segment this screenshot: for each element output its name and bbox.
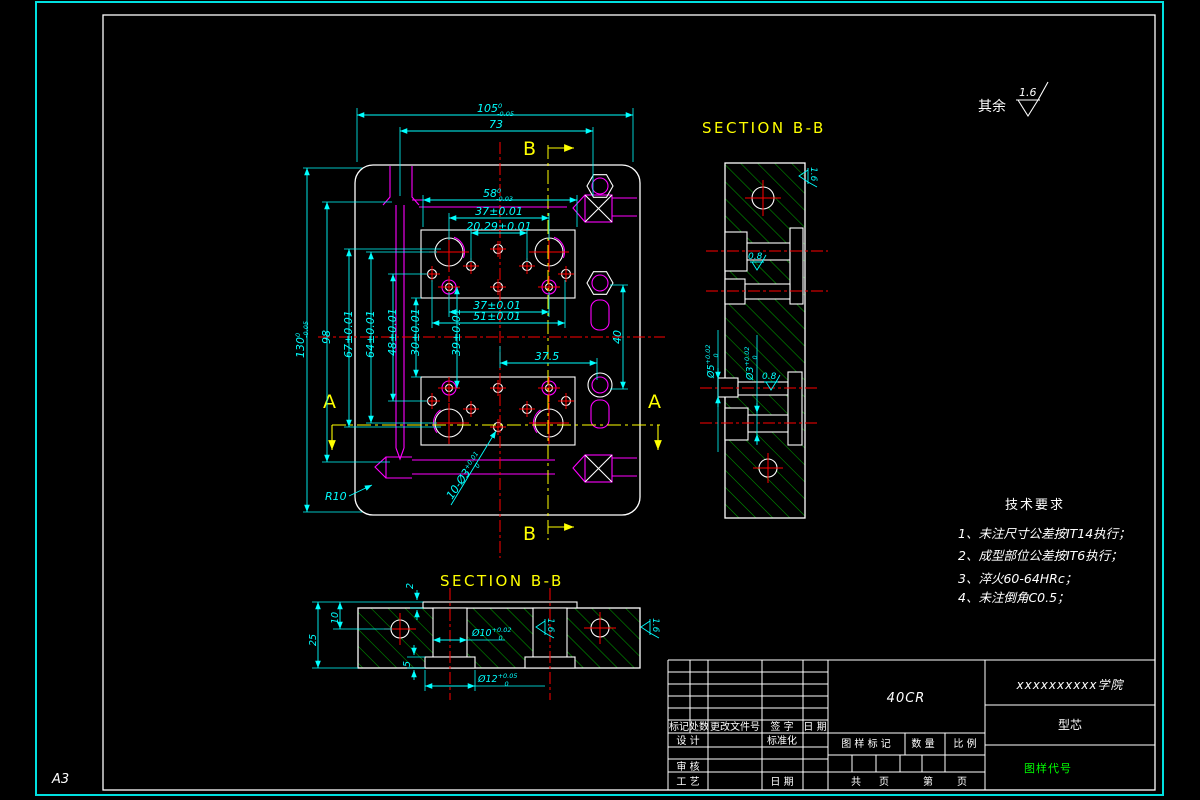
dim-20.29: 20.29±0.01 xyxy=(466,220,531,233)
total-label: 共 xyxy=(851,776,861,788)
tech-req-item-3: 3、淬火60-64HRc； xyxy=(958,571,1077,586)
dim-10xd3: 10-Ø3+0.010 xyxy=(444,450,487,503)
dim-25: 25 xyxy=(308,634,319,646)
row-check-label: 审 核 xyxy=(676,760,699,773)
dim-10: 10 xyxy=(330,612,341,624)
r10-leader xyxy=(349,485,372,496)
title-block: 标记 处数 更改文件号 签 字 日 期 设 计 标准化 审 核 工 艺 日 期 … xyxy=(668,660,1155,790)
finish-0.8-b: 0.8 xyxy=(762,372,777,382)
dim-r10: R10 xyxy=(325,490,347,503)
sheet-format-label: A3 xyxy=(51,772,69,787)
cad-canvas: A3 其余 1.6 xyxy=(0,0,1200,800)
dim-37-top: 37±0.01 xyxy=(475,205,523,218)
dim-30: 30±0.01 xyxy=(409,308,422,356)
section-label-right: SECTION B-B xyxy=(702,119,826,137)
plan-dimension-lines xyxy=(303,108,633,512)
rev-header-count: 处数 xyxy=(689,720,709,733)
quantity-label: 数 量 xyxy=(911,737,934,750)
drawing-border: A3 xyxy=(36,2,1163,795)
row-standard-label: 标准化 xyxy=(767,734,797,747)
section-view-bottom: SECTION B-B 25 10 2 5 Ø10+0.020 Ø12+0.05… xyxy=(308,572,660,700)
row-date-label: 日 期 xyxy=(770,776,793,788)
tech-requirements: 技术要求 1、未注尺寸公差按IT14执行； 2、成型部位公差按IT6执行； 3、… xyxy=(958,498,1131,605)
rev-header-docno: 更改文件号 xyxy=(710,720,760,733)
roughness-icon: 1.6 xyxy=(641,618,660,638)
rev-header-mark: 标记 xyxy=(669,721,689,733)
drawing-mark-label: 图 样 标 记 xyxy=(841,737,891,750)
rev-header-sign: 签 字 xyxy=(770,720,793,733)
general-finish-note: 其余 1.6 xyxy=(978,82,1048,116)
dim-2: 2 xyxy=(405,583,416,589)
tech-req-item-2: 2、成型部位公差按IT6执行； xyxy=(958,548,1123,563)
dim-48: 48±0.01 xyxy=(386,308,399,356)
dim-39: 39±0.01 xyxy=(450,308,463,356)
finish-0.8-a: 0.8 xyxy=(748,252,763,262)
drawing-code: 图样代号 xyxy=(1024,761,1072,775)
section-letter-b-top: B xyxy=(523,138,536,160)
section-letter-b-bottom: B xyxy=(523,523,536,545)
row-process-label: 工 艺 xyxy=(676,776,699,788)
dim-98: 98 xyxy=(320,330,333,344)
dim-37.5: 37.5 xyxy=(535,350,560,363)
row-design-label: 设 计 xyxy=(676,734,699,747)
dim-5: 5 xyxy=(402,661,413,667)
sheet-no-label: 第 xyxy=(923,775,933,788)
finish-1.6-stem: 1.6 xyxy=(545,618,555,633)
section-view-right: SECTION B-B Ø5+0.020 Ø3+0.020 1.6 0.8 xyxy=(700,119,828,518)
section-letter-a-left: A xyxy=(323,391,336,413)
guide-pillar-cross-icon xyxy=(585,195,612,482)
scale-label: 比 例 xyxy=(953,737,976,750)
tech-req-item-4: 4、未注倒角C0.5； xyxy=(958,590,1070,605)
finish-1.6-right: 1.6 xyxy=(808,167,818,182)
company-name: xxxxxxxxxx学院 xyxy=(1015,678,1124,692)
dim-105: 1050-0.05 xyxy=(477,102,514,118)
dim-67: 67±0.01 xyxy=(342,310,355,358)
page-label: 页 xyxy=(879,776,889,788)
dim-51: 51±0.01 xyxy=(473,310,521,323)
rev-header-date: 日 期 xyxy=(803,721,826,733)
dim-73: 73 xyxy=(489,118,503,131)
cad-drawing-sheet: A3 其余 1.6 xyxy=(0,0,1200,800)
section-letter-a-right: A xyxy=(648,391,661,413)
finish-1.6-edge: 1.6 xyxy=(650,618,660,633)
tech-req-title: 技术要求 xyxy=(1005,498,1065,513)
dim-40: 40 xyxy=(611,330,624,344)
dim-64: 64±0.01 xyxy=(364,310,377,358)
finish-value: 1.6 xyxy=(1019,86,1037,99)
dim-58: 580-0.03 xyxy=(483,187,513,203)
part-name: 型芯 xyxy=(1058,718,1082,732)
page2-label: 页 xyxy=(957,776,967,788)
plan-view: B B A A 1050-0.05 xyxy=(294,102,665,558)
tech-req-item-1: 1、未注尺寸公差按IT14执行； xyxy=(958,526,1131,541)
finish-prefix-label: 其余 xyxy=(978,98,1006,115)
material-value: 40CR xyxy=(887,691,926,706)
dim-130: 1300-0.05 xyxy=(294,321,310,358)
section-label-bottom: SECTION B-B xyxy=(440,572,564,590)
